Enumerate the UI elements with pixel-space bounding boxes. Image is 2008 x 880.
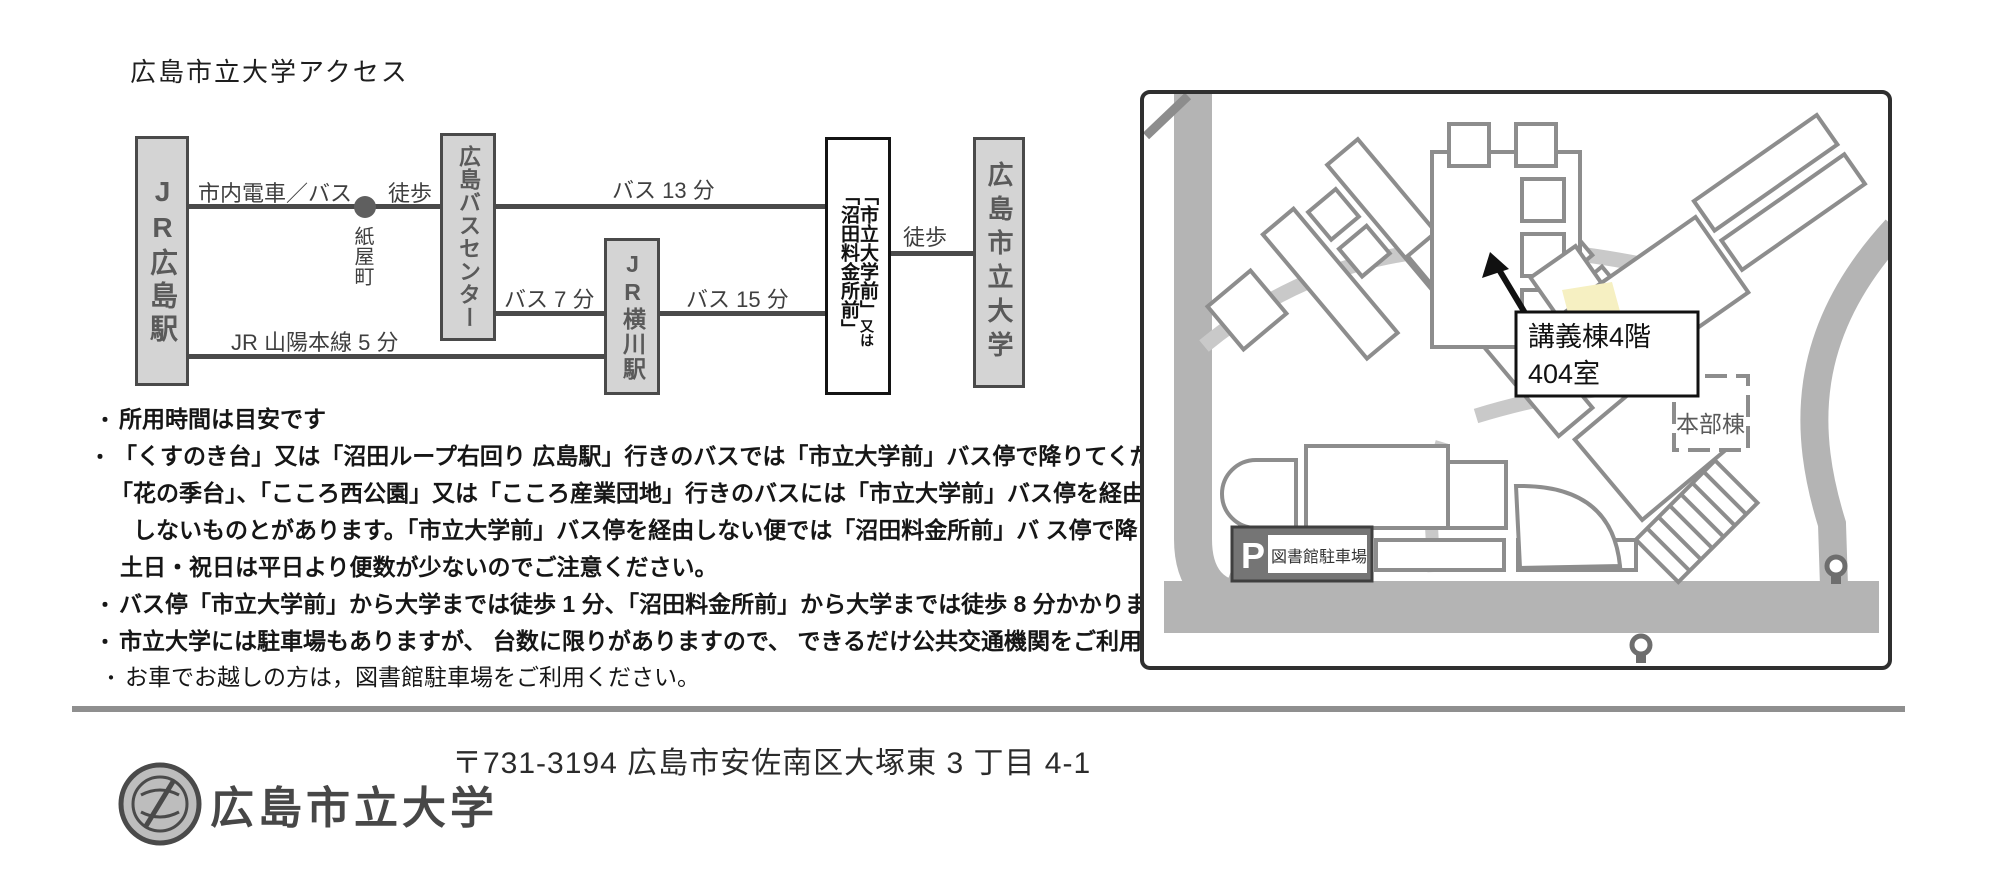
walk-label-2: 徒歩 [903, 220, 947, 252]
kamiyacho-stop-dot [354, 196, 376, 218]
campus-map-svg: 講義棟4階 404室 本部棟 P 図書館駐車場 [1144, 94, 1892, 670]
note-line: 土日・祝日は平日より便数が少ないのでご注意ください。 [120, 548, 718, 582]
parking-p-icon: P [1241, 535, 1265, 576]
campus-map: 講義棟4階 404室 本部棟 P 図書館駐車場 [1140, 90, 1892, 670]
annotation-box: 講義棟4階 404室 [1516, 312, 1698, 396]
note-line: ・「くすのき台」又は「沼田ループ右回り 広島駅」行きのバスでは「市立大学前」バス… [90, 437, 1222, 471]
building-round-end [1222, 460, 1296, 528]
walk-label-1: 徒歩 [388, 176, 432, 208]
bus-stop-conj: 又は [859, 319, 875, 347]
bus-stop-primary: 「市立大学前」又は [858, 186, 877, 347]
kamiyacho-label: 紙屋町 [352, 226, 372, 286]
node-label: 広島市立大学 [986, 161, 1012, 365]
node-bus-stop: 「市立大学前」又は 「沼田料金所前」 [825, 137, 891, 395]
node-label: 広島バスセンター [457, 145, 479, 329]
bus-stop-icon [1632, 636, 1650, 663]
library-parking-badge: P 図書館駐車場 [1232, 527, 1372, 581]
building-bars-east [1694, 115, 1865, 270]
footer-divider [72, 706, 1905, 712]
bus-stop-label-group: 「市立大学前」又は 「沼田料金所前」 [839, 186, 877, 347]
note-line: ・お車でお越しの方は，図書館駐車場をご利用ください。 [101, 658, 700, 692]
building-fan [1516, 486, 1620, 568]
access-notice-page: 広島市立大学アクセス 市内電車／バス 徒歩 紙屋町 バス 13 分 バス 7 分… [0, 0, 2008, 880]
node-jr-hiroshima-station: JR広島駅 [135, 136, 189, 386]
note-line: ・市立大学には駐車場もありますが、 台数に限りがありますので、 できるだけ公共交… [95, 622, 1257, 656]
note-line: ・所用時間は目安です [95, 400, 326, 434]
bus7-label: バス 7 分 [504, 282, 594, 314]
footer-address: 〒731-3194 広島市安佐南区大塚東 3 丁目 4-1 [452, 738, 1091, 782]
node-hiroshima-city-university: 広島市立大学 [973, 137, 1025, 388]
bus15-label: バス 15 分 [686, 282, 789, 314]
node-hiroshima-bus-center: 広島バスセンター [440, 133, 496, 341]
node-label: JR横川駅 [621, 251, 644, 382]
parking-label: 図書館駐車場 [1271, 548, 1367, 566]
headquarters-label: 本部棟 [1676, 411, 1745, 437]
tram-label: 市内電車／バス [198, 176, 352, 208]
jr-sanyo-label: JR 山陽本線 5 分 [231, 325, 398, 357]
node-label: JR広島駅 [148, 176, 176, 347]
note-line: 「花の季台」、「こころ西公園」又は「こころ産業団地」行きのバスには「市立大学前」… [110, 474, 1214, 508]
annotation-line2: 404室 [1528, 359, 1600, 389]
note-line: ・バス停「市立大学前」から大学までは徒歩 1 分、「沼田料金所前」から大学までは… [95, 585, 1191, 619]
annotation-line1: 講義棟4階 [1528, 322, 1651, 352]
note-line: しないものとがあります。「市立大学前」バス停を経由しない便では「沼田料金所前」バ… [133, 511, 1276, 545]
bus13-label: バス 13 分 [612, 173, 715, 205]
university-logo [116, 760, 204, 853]
bus-stop-secondary: 「沼田料金所前」 [839, 186, 858, 347]
node-jr-yokogawa-station: JR横川駅 [604, 238, 660, 395]
page-title: 広島市立大学アクセス [130, 52, 409, 89]
